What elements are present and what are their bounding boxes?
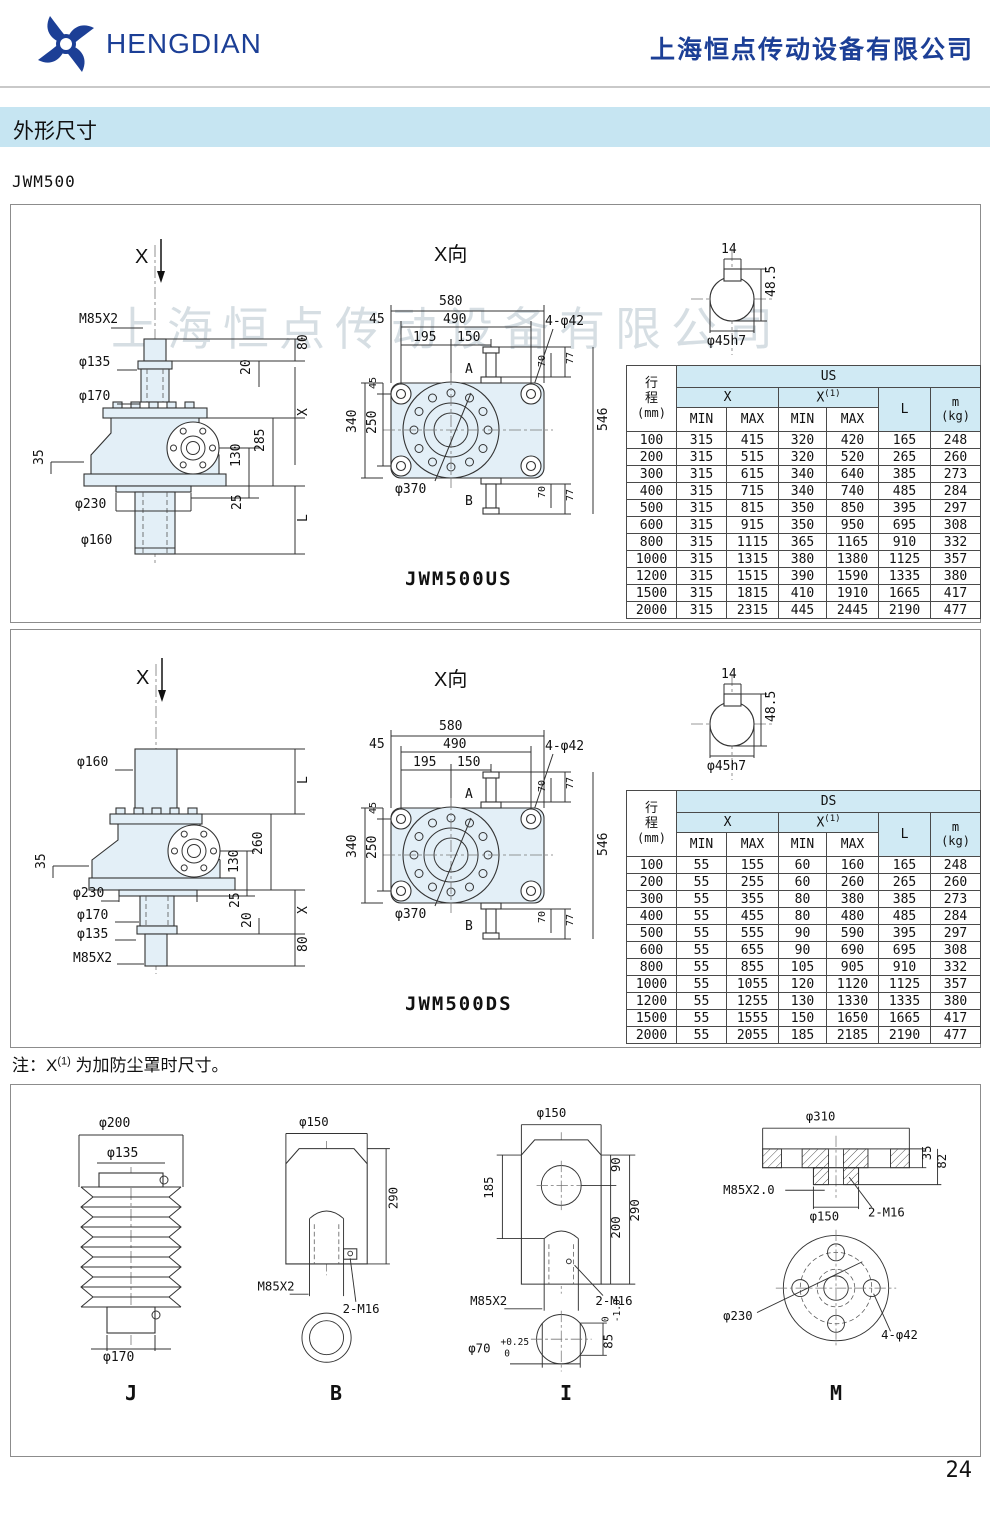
table-cell: 320 xyxy=(779,432,827,449)
table-cell: 55 xyxy=(677,976,727,993)
table-cell: 332 xyxy=(931,959,981,976)
table-cell: 640 xyxy=(827,466,879,483)
col-header-max: MAX xyxy=(827,408,879,432)
dim-label: 150 xyxy=(457,755,480,770)
jack-body xyxy=(89,749,235,966)
accessory-m-drawing: φ310 35 82 M85X2.0 φ150 2-M16 xyxy=(716,1100,956,1368)
dim-label: 4-φ42 xyxy=(545,739,584,754)
table-cell: 855 xyxy=(727,959,779,976)
dim-label: 45 xyxy=(368,377,379,389)
accessory-m-label: M xyxy=(716,1381,956,1405)
table-cell: 297 xyxy=(931,925,981,942)
table-row: 150055155515016501665417 xyxy=(627,1010,981,1027)
dim-label: 14 xyxy=(721,667,737,682)
table-cell: 385 xyxy=(879,891,931,908)
table-cell: 284 xyxy=(931,908,981,925)
table-cell: 555 xyxy=(727,925,779,942)
table-cell: 1380 xyxy=(827,551,879,568)
col-header-group: DS xyxy=(677,791,981,813)
panel-jwm500us: 上海恒点传动设备有限公司 X xyxy=(10,204,981,623)
table-row: 300315615340640385273 xyxy=(627,466,981,483)
table-cell: 915 xyxy=(727,517,779,534)
dim-label: 4-φ42 xyxy=(881,1328,918,1342)
table-row: 2005525560260265260 xyxy=(627,874,981,891)
table-cell: 340 xyxy=(779,466,827,483)
dim-label: 340 xyxy=(345,835,360,858)
table-cell: 315 xyxy=(677,602,727,619)
dim-label: M85X2 xyxy=(258,1279,295,1293)
table-cell: 1255 xyxy=(727,993,779,1010)
table-cell: 260 xyxy=(931,449,981,466)
dim-label: L xyxy=(296,776,311,784)
table-cell: 265 xyxy=(879,449,931,466)
table-cell: 100 xyxy=(627,432,677,449)
table-cell: 417 xyxy=(931,585,981,602)
dim-label: 85 xyxy=(602,1334,616,1349)
table-row: 5005555590590395297 xyxy=(627,925,981,942)
dim-label: L xyxy=(296,514,311,522)
table-cell: 400 xyxy=(627,908,677,925)
dim-label: 82 xyxy=(935,1154,949,1169)
table-row: 2000315231544524452190477 xyxy=(627,602,981,619)
dim-label: 2-M16 xyxy=(868,1206,905,1220)
table-cell: 1335 xyxy=(879,993,931,1010)
table-cell: 715 xyxy=(727,483,779,500)
col-header-stroke: 行程(mm) xyxy=(627,366,677,432)
brand-name: HENGDIAN xyxy=(106,28,262,60)
table-cell: 395 xyxy=(879,925,931,942)
col-header-group: US xyxy=(677,366,981,388)
table-cell: 455 xyxy=(727,908,779,925)
table-cell: 800 xyxy=(627,959,677,976)
dim-label: 80 xyxy=(296,936,311,952)
dim-label: 546 xyxy=(596,833,611,856)
dimensions-top: 580 490 45 195 150 4-φ42 xyxy=(369,719,584,819)
dim-label: 250 xyxy=(365,411,380,434)
dim-label: φ150 xyxy=(810,1209,839,1223)
table-cell: 1500 xyxy=(627,585,677,602)
table-cell: 273 xyxy=(931,466,981,483)
table-row: 4005545580480485284 xyxy=(627,908,981,925)
ds-shaft-view: 14 48.5 φ45h7 xyxy=(651,648,846,788)
col-header-x1: X(1) xyxy=(779,813,879,833)
dim-label: 77 xyxy=(565,777,576,789)
dim-label: A xyxy=(465,362,473,377)
table-cell: 350 xyxy=(779,517,827,534)
dim-label: φ370 xyxy=(395,482,426,497)
table-row: 200055205518521852190477 xyxy=(627,1027,981,1044)
dim-label: φ200 xyxy=(99,1116,130,1131)
table-cell: 815 xyxy=(727,500,779,517)
table-cell: 740 xyxy=(827,483,879,500)
table-cell: 105 xyxy=(779,959,827,976)
dim-label: 195 xyxy=(413,755,436,770)
table-cell: 315 xyxy=(677,551,727,568)
table-cell: 315 xyxy=(677,483,727,500)
col-header-x: X xyxy=(677,813,779,833)
dim-label: 290 xyxy=(628,1199,642,1221)
dim-label: 70 xyxy=(537,911,548,923)
table-cell: 55 xyxy=(677,959,727,976)
table-cell: 315 xyxy=(677,466,727,483)
table-cell: 600 xyxy=(627,517,677,534)
table-cell: 297 xyxy=(931,500,981,517)
drawing-caption: JWM500US xyxy=(405,568,513,590)
table-cell: 340 xyxy=(779,483,827,500)
dim-label: 195 xyxy=(413,330,436,345)
col-header-l: L xyxy=(879,813,931,857)
dim-label: X xyxy=(135,246,148,268)
table-cell: 477 xyxy=(931,1027,981,1044)
table-row: 1500315181541019101665417 xyxy=(627,585,981,602)
table-cell: 248 xyxy=(931,857,981,874)
dim-label: 48.5 xyxy=(764,691,779,722)
view-title: X向 xyxy=(434,243,467,266)
table-cell: 320 xyxy=(779,449,827,466)
table-row: 80031511153651165910332 xyxy=(627,534,981,551)
dim-label: M85X2 xyxy=(79,312,118,327)
dim-label: 77 xyxy=(565,352,576,364)
dim-label: 14 xyxy=(721,242,737,257)
dim-label: 490 xyxy=(443,312,466,327)
dim-label: X xyxy=(296,408,311,416)
table-row: 120055125513013301335380 xyxy=(627,993,981,1010)
table-cell: 255 xyxy=(727,874,779,891)
dim-label: φ170 xyxy=(77,908,108,923)
table-cell: 910 xyxy=(879,534,931,551)
ds-top-view: X向 580 490 45 195 150 4-φ42 xyxy=(339,638,637,1038)
table-cell: 1335 xyxy=(879,568,931,585)
dim-label: φ135 xyxy=(79,355,110,370)
dim-label: M85X2 xyxy=(470,1294,507,1308)
table-cell: 130 xyxy=(779,993,827,1010)
accessory-i-drawing: φ150 185 90 200 290 M85X2 2-M16 xyxy=(461,1100,671,1380)
table-cell: 315 xyxy=(677,449,727,466)
dim-label: 25 xyxy=(230,494,245,510)
col-header-x1: X(1) xyxy=(779,388,879,408)
section-title: 外形尺寸 xyxy=(13,115,97,145)
table-cell: 485 xyxy=(879,483,931,500)
dim-label: 200 xyxy=(609,1216,623,1238)
ds-side-view: X xyxy=(19,644,339,1036)
table-row: 6005565590690695308 xyxy=(627,942,981,959)
table-cell: 357 xyxy=(931,976,981,993)
table-cell: 120 xyxy=(779,976,827,993)
dim-label: φ230 xyxy=(723,1309,752,1323)
table-cell: 365 xyxy=(779,534,827,551)
table-cell: 60 xyxy=(779,857,827,874)
table-cell: 2445 xyxy=(827,602,879,619)
table-cell: 150 xyxy=(779,1010,827,1027)
table-cell: 910 xyxy=(879,959,931,976)
table-cell: 55 xyxy=(677,891,727,908)
table-cell: 905 xyxy=(827,959,879,976)
table-cell: 2000 xyxy=(627,1027,677,1044)
dim-label: 48.5 xyxy=(764,266,779,297)
dim-label: φ230 xyxy=(73,886,104,901)
col-header-m: m(kg) xyxy=(931,388,981,432)
col-header-min: MIN xyxy=(677,833,727,857)
panel-jwm500ds: X xyxy=(10,629,981,1048)
table-cell: 308 xyxy=(931,517,981,534)
col-header-min: MIN xyxy=(677,408,727,432)
dim-label: 130 xyxy=(229,444,244,467)
dim-label: 250 xyxy=(365,836,380,859)
table-cell: 2185 xyxy=(827,1027,879,1044)
dim-label: 150 xyxy=(457,330,480,345)
table-cell: 1315 xyxy=(727,551,779,568)
table-cell: 1555 xyxy=(727,1010,779,1027)
table-cell: 477 xyxy=(931,602,981,619)
table-cell: 420 xyxy=(827,432,879,449)
table-cell: 1665 xyxy=(879,1010,931,1027)
panel-accessories: φ200 φ135 φ170 J φ150 xyxy=(10,1084,981,1457)
table-cell: 260 xyxy=(931,874,981,891)
table-cell: 690 xyxy=(827,942,879,959)
table-cell: 480 xyxy=(827,908,879,925)
dim-label: φ160 xyxy=(77,755,108,770)
dim-label: φ150 xyxy=(299,1115,329,1129)
dim-label: 70 xyxy=(537,780,548,792)
col-header-l: L xyxy=(879,388,931,432)
dim-label: 130 xyxy=(227,850,242,873)
dim-label: 285 xyxy=(253,429,268,452)
table-cell: 695 xyxy=(879,942,931,959)
accessory-j-label: J xyxy=(51,1381,211,1405)
table-cell: 500 xyxy=(627,500,677,517)
table-cell: 655 xyxy=(727,942,779,959)
dim-label: 20 xyxy=(240,912,255,928)
table-cell: 1665 xyxy=(879,585,931,602)
jack-body xyxy=(84,339,226,554)
col-header-x: X xyxy=(677,388,779,408)
dim-label: φ135 xyxy=(77,927,108,942)
page-number: 24 xyxy=(946,1458,973,1483)
dim-label: 70 xyxy=(537,355,548,367)
table-cell: 1000 xyxy=(627,976,677,993)
dim-label: 35 xyxy=(34,853,49,869)
table-cell: 55 xyxy=(677,857,727,874)
table-row: 600315915350950695308 xyxy=(627,517,981,534)
dim-tolerance: 0 xyxy=(601,1316,612,1322)
dim-tolerance: 0 xyxy=(504,1348,510,1359)
table-cell: 300 xyxy=(627,466,677,483)
table-cell: 315 xyxy=(677,585,727,602)
table-cell: 90 xyxy=(779,925,827,942)
table-cell: 1200 xyxy=(627,568,677,585)
table-cell: 2000 xyxy=(627,602,677,619)
dim-label: A xyxy=(465,787,473,802)
table-cell: 445 xyxy=(779,602,827,619)
accessory-b-drawing: φ150 290 M85X2 2-M16 xyxy=(251,1107,421,1367)
col-header-m: m(kg) xyxy=(931,813,981,857)
dim-label: 4-φ42 xyxy=(545,314,584,329)
table-cell: 160 xyxy=(827,857,879,874)
accessory-i-label: I xyxy=(461,1381,671,1405)
table-cell: 417 xyxy=(931,1010,981,1027)
table-cell: 695 xyxy=(879,517,931,534)
dim-label: φ135 xyxy=(107,1146,138,1161)
dim-label: 35 xyxy=(32,449,47,465)
dim-label: X xyxy=(296,906,311,914)
dim-label: φ310 xyxy=(806,1110,835,1124)
dim-label: 45 xyxy=(368,802,379,814)
drawing-caption: JWM500DS xyxy=(405,993,513,1015)
us-shaft-view: 14 48.5 φ45h7 xyxy=(651,223,846,363)
dim-label: φ160 xyxy=(81,533,112,548)
dim-label: 490 xyxy=(443,737,466,752)
dim-label: 70 xyxy=(537,486,548,498)
col-header-max: MAX xyxy=(727,833,779,857)
table-cell: 410 xyxy=(779,585,827,602)
table-row: 3005535580380385273 xyxy=(627,891,981,908)
table-cell: 315 xyxy=(677,517,727,534)
dim-label: 20 xyxy=(239,359,254,375)
table-cell: 165 xyxy=(879,432,931,449)
table-cell: 500 xyxy=(627,925,677,942)
dim-label: 580 xyxy=(439,719,462,734)
dim-label: 340 xyxy=(345,410,360,433)
table-cell: 185 xyxy=(779,1027,827,1044)
ds-spec-table: 行程(mm) DS X X(1) L m(kg) MIN MAX MIN MAX… xyxy=(626,790,981,1044)
table-cell: 55 xyxy=(677,993,727,1010)
table-cell: 1115 xyxy=(727,534,779,551)
dim-label: 290 xyxy=(386,1187,400,1209)
dim-label: M85X2.0 xyxy=(723,1183,775,1197)
table-cell: 332 xyxy=(931,534,981,551)
table-cell: 165 xyxy=(879,857,931,874)
catalog-page: HENGDIAN 上海恒点传动设备有限公司 外形尺寸 JWM500 上海恒点传动… xyxy=(0,0,990,1513)
table-cell: 415 xyxy=(727,432,779,449)
table-cell: 1200 xyxy=(627,993,677,1010)
table-cell: 485 xyxy=(879,908,931,925)
table-cell: 1815 xyxy=(727,585,779,602)
table-row: 1200315151539015901335380 xyxy=(627,568,981,585)
col-header-max: MAX xyxy=(727,408,779,432)
table-cell: 2055 xyxy=(727,1027,779,1044)
table-cell: 380 xyxy=(779,551,827,568)
us-spec-table: 行程(mm) US X X(1) L m(kg) MIN MAX MIN MAX… xyxy=(626,365,981,619)
company-name: 上海恒点传动设备有限公司 xyxy=(650,30,974,66)
table-cell: 315 xyxy=(677,432,727,449)
dim-label: 77 xyxy=(565,914,576,926)
table-cell: 615 xyxy=(727,466,779,483)
table-cell: 200 xyxy=(627,449,677,466)
table-cell: 600 xyxy=(627,942,677,959)
accessory-j-drawing: φ200 φ135 φ170 xyxy=(51,1103,211,1373)
dim-label: B xyxy=(465,919,473,934)
table-cell: 1000 xyxy=(627,551,677,568)
table-cell: 400 xyxy=(627,483,677,500)
dim-label: 77 xyxy=(565,489,576,501)
table-cell: 520 xyxy=(827,449,879,466)
table-row: 80055855105905910332 xyxy=(627,959,981,976)
col-header-min: MIN xyxy=(779,408,827,432)
table-cell: 1590 xyxy=(827,568,879,585)
table-cell: 1910 xyxy=(827,585,879,602)
table-cell: 60 xyxy=(779,874,827,891)
table-cell: 273 xyxy=(931,891,981,908)
dim-label: φ170 xyxy=(79,389,110,404)
table-row: 100055105512011201125357 xyxy=(627,976,981,993)
dim-label: φ45h7 xyxy=(707,334,746,349)
table-cell: 80 xyxy=(779,908,827,925)
table-cell: 248 xyxy=(931,432,981,449)
dim-tolerance: +0.25 xyxy=(501,1337,530,1348)
dimensions-top: 580 490 45 195 150 4-φ42 xyxy=(369,294,584,394)
dim-label: φ150 xyxy=(537,1106,567,1120)
table-cell: 265 xyxy=(879,874,931,891)
table-cell: 1650 xyxy=(827,1010,879,1027)
table-row: 1005515560160165248 xyxy=(627,857,981,874)
table-cell: 100 xyxy=(627,857,677,874)
table-cell: 2190 xyxy=(879,602,931,619)
dim-tolerance: -1.0 xyxy=(612,1299,623,1322)
table-cell: 380 xyxy=(931,568,981,585)
table-cell: 315 xyxy=(677,568,727,585)
table-cell: 1120 xyxy=(827,976,879,993)
table-cell: 385 xyxy=(879,466,931,483)
table-cell: 380 xyxy=(931,993,981,1010)
dim-label: 546 xyxy=(596,408,611,431)
page-header: HENGDIAN 上海恒点传动设备有限公司 xyxy=(0,0,990,88)
table-cell: 315 xyxy=(677,500,727,517)
dim-label: X xyxy=(136,667,149,689)
dim-label: φ230 xyxy=(75,497,106,512)
table-cell: 1165 xyxy=(827,534,879,551)
dim-label: 2-M16 xyxy=(343,1302,380,1316)
table-cell: 200 xyxy=(627,874,677,891)
table-cell: 590 xyxy=(827,925,879,942)
table-cell: 355 xyxy=(727,891,779,908)
table-cell: 950 xyxy=(827,517,879,534)
us-side-view: X xyxy=(19,219,339,611)
table-cell: 55 xyxy=(677,925,727,942)
table-cell: 515 xyxy=(727,449,779,466)
section-banner: 外形尺寸 xyxy=(0,107,990,147)
table-cell: 800 xyxy=(627,534,677,551)
table-cell: 55 xyxy=(677,874,727,891)
table-cell: 90 xyxy=(779,942,827,959)
footnote: 注：X(1) 为加防尘罩时尺寸。 xyxy=(12,1051,229,1076)
dim-label: 185 xyxy=(482,1176,496,1198)
table-cell: 2315 xyxy=(727,602,779,619)
us-top-view: X向 580 490 45 195 150 4-φ42 xyxy=(339,213,637,613)
dim-label: φ45h7 xyxy=(707,759,746,774)
table-cell: 260 xyxy=(827,874,879,891)
dim-label: 580 xyxy=(439,294,462,309)
table-row: 200315515320520265260 xyxy=(627,449,981,466)
table-cell: 55 xyxy=(677,1010,727,1027)
table-cell: 1125 xyxy=(879,551,931,568)
table-cell: 850 xyxy=(827,500,879,517)
table-cell: 315 xyxy=(677,534,727,551)
accessory-b-label: B xyxy=(251,1381,421,1405)
dim-label: 260 xyxy=(251,832,266,855)
table-cell: 284 xyxy=(931,483,981,500)
table-cell: 390 xyxy=(779,568,827,585)
dim-label: 35 xyxy=(920,1145,934,1160)
table-cell: 1500 xyxy=(627,1010,677,1027)
table-row: 400315715340740485284 xyxy=(627,483,981,500)
dim-label: 25 xyxy=(228,892,243,908)
dim-label: φ370 xyxy=(395,907,426,922)
table-cell: 55 xyxy=(677,942,727,959)
table-cell: 1125 xyxy=(879,976,931,993)
dim-label: 90 xyxy=(609,1157,623,1172)
table-cell: 395 xyxy=(879,500,931,517)
dim-label: 80 xyxy=(296,334,311,350)
